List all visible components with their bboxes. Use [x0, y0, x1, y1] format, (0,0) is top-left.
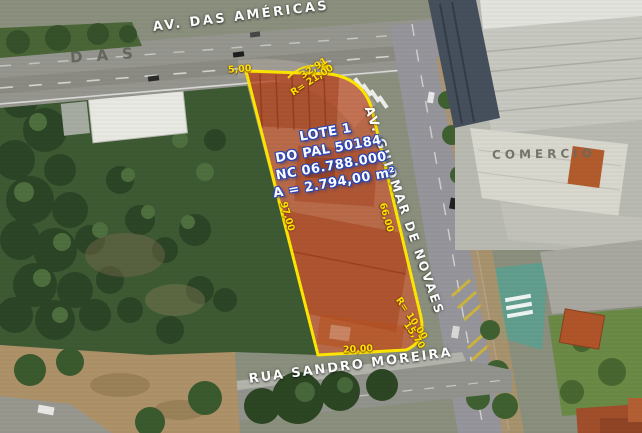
dirt-patch [85, 233, 165, 277]
satellite-map[interactable]: AV. DAS AMÉRICAS DAS AV. GUIOMAR DE NOVA… [0, 0, 642, 433]
concrete-yard [540, 240, 642, 314]
dimension-bottom: 20,00 [343, 343, 374, 356]
terracotta-building [559, 309, 604, 349]
dirt-patch-2 [145, 284, 205, 316]
dimension-top-left: 5,00 [228, 63, 252, 76]
rooftop-label-comercio: COMERCIO [492, 146, 596, 162]
